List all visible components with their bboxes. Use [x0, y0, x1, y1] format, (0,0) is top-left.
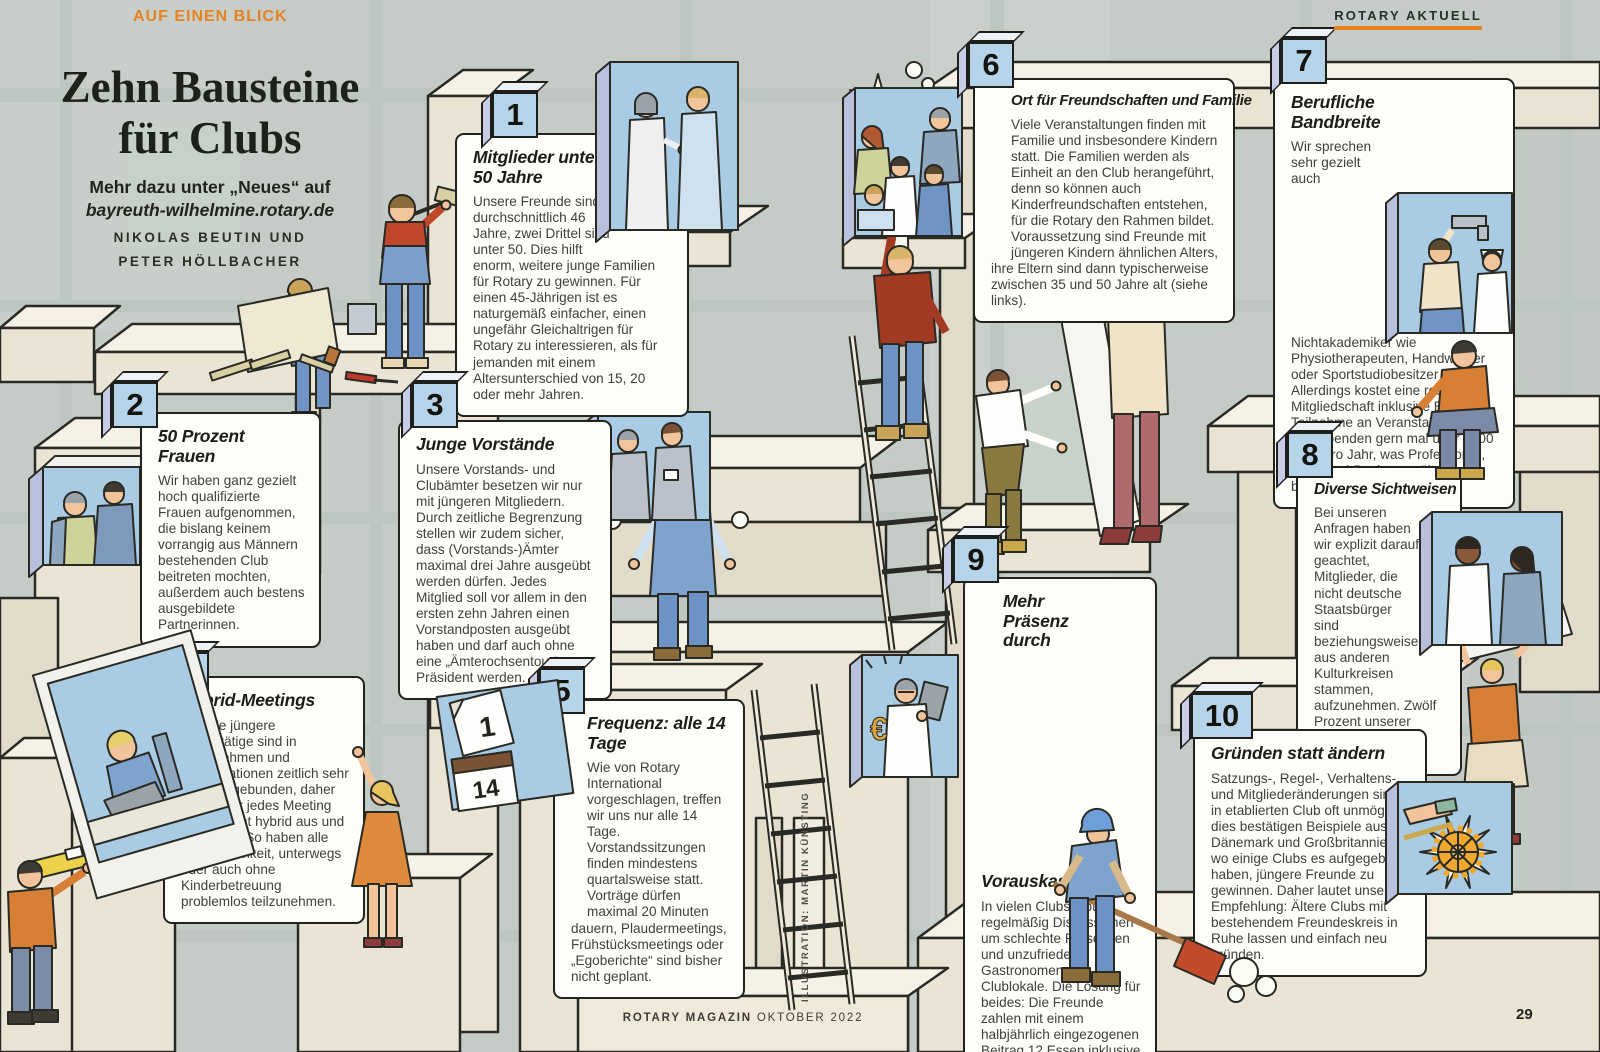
block-number: 3 — [412, 382, 458, 428]
photo-euro-payer: € — [850, 655, 958, 787]
block-panel-2: 50 Prozent Frauen Wir haben ganz gezielt… — [140, 412, 321, 648]
section-tag: ROTARY AKTUELL — [1334, 8, 1482, 30]
block-number: 4 — [163, 652, 209, 698]
block-title: Ort für Freundschaften und Familie — [991, 93, 1219, 110]
block-panel-6: Ort für Freundschaften und Familie Viele… — [973, 78, 1235, 323]
text-wrap-spacer — [1085, 836, 1141, 872]
block-number: 5 — [539, 668, 585, 714]
block-body: In vielen Clubs gibt es regelmäßig Disku… — [981, 899, 1141, 1052]
block-body: Viele Veranstaltungen finden mit Familie… — [991, 117, 1219, 309]
authors: NIKOLAS BEUTIN UND PETER HÖLLBACHER — [20, 226, 400, 273]
cube-top-face — [1191, 682, 1264, 693]
illustration-credit: ILLUSTRATION: MARTIN KÜNSTING — [800, 826, 811, 1002]
block-number: 2 — [112, 382, 158, 428]
footer-magazine-name: ROTARY MAGAZIN — [623, 1012, 752, 1024]
euro-icon: € — [870, 711, 888, 747]
photo-two-members — [29, 456, 152, 577]
page-number: 29 — [1516, 1006, 1533, 1023]
block-title: Frequenz: alle 14 Tage — [571, 714, 729, 753]
block-title: 50 Prozent Frauen — [158, 427, 305, 466]
block-title: Junge Vorstände — [416, 435, 596, 455]
block-number-cube-4: 4 — [163, 652, 209, 698]
page-title-line-1: Zehn Bausteine — [61, 62, 360, 112]
block-number-cube-3: 3 — [412, 382, 458, 428]
block-number-cube-5: 5 — [539, 668, 585, 714]
block-panel-10: Gründen statt ändern Satzungs-, Regel-, … — [1193, 729, 1427, 977]
page-title-line-2: für Clubs — [119, 113, 302, 163]
block-body: Wie von Rotary International vorgeschlag… — [571, 760, 729, 984]
block-title: Gründen statt ändern — [1211, 744, 1411, 764]
block-body: Unsere Vorstands- und Clubämter besetzen… — [416, 462, 596, 686]
text-wrap-spacer — [981, 650, 1003, 818]
block-number: 8 — [1287, 432, 1333, 478]
footer-issue: OKTOBER 2022 — [757, 1012, 863, 1024]
block-number: 6 — [968, 42, 1014, 88]
block-title: Berufliche Bandbreite — [1291, 93, 1499, 132]
block-number: 9 — [953, 537, 999, 583]
block-number-cube-1: 1 — [492, 92, 538, 138]
block-number-cube-9: 9 — [953, 537, 999, 583]
block-panel-5: Frequenz: alle 14 Tage Wie von Rotary In… — [553, 699, 745, 999]
text-wrap-spacer — [1420, 531, 1446, 651]
author-line-1: NIKOLAS BEUTIN UND — [20, 226, 400, 250]
subtitle-url: bayreuth-wilhelmine.rotary.de — [20, 199, 400, 222]
block-panel-4: Hybrid-Meetings Gerade jüngere Berufstät… — [163, 676, 365, 924]
block-number-cube-10: 10 — [1191, 693, 1253, 739]
text-wrap-spacer — [991, 205, 1011, 259]
text-wrap-spacer — [617, 148, 673, 246]
block-body: Satzungs-, Regel-, Verhaltens- und Mitgl… — [1211, 771, 1411, 963]
block-number: 7 — [1281, 38, 1327, 84]
block-body: Gerade jüngere Berufstätige sind in Unte… — [181, 718, 349, 910]
block-panel-9: Mehr Präsenz durch Vorauskasse In vielen… — [963, 577, 1157, 1052]
block-number-cube-7: 7 — [1281, 38, 1327, 84]
text-wrap-spacer — [571, 766, 587, 916]
block-number-cube-6: 6 — [968, 42, 1014, 88]
block-panel-1: Mitglieder unter 50 Jahre Unsere Freunde… — [455, 133, 689, 417]
block-number: 1 — [492, 92, 538, 138]
magazine-page: € Mitglieder unter 50 Jahre Unsere Freun… — [0, 0, 1600, 1052]
subtitle: Mehr dazu unter „Neues“ auf bayreuth-wil… — [20, 176, 400, 222]
page-title: Zehn Bausteine für Clubs — [20, 62, 400, 164]
block-title: Diverse Sichtweisen — [1314, 481, 1446, 498]
photo-family — [843, 88, 962, 246]
block-body: Wir haben ganz gezielt hoch qualifiziert… — [158, 473, 305, 633]
block-number: 10 — [1191, 693, 1253, 739]
footer: ROTARY MAGAZIN OKTOBER 2022 — [582, 1012, 904, 1024]
block-number-cube-8: 8 — [1287, 432, 1333, 478]
block-number-cube-2: 2 — [112, 382, 158, 428]
text-wrap-spacer — [1383, 189, 1499, 335]
author-line-2: PETER HÖLLBACHER — [20, 250, 400, 274]
kicker: AUF EINEN BLICK — [133, 8, 288, 26]
subtitle-line-1: Mehr dazu unter „Neues“ auf — [20, 176, 400, 199]
